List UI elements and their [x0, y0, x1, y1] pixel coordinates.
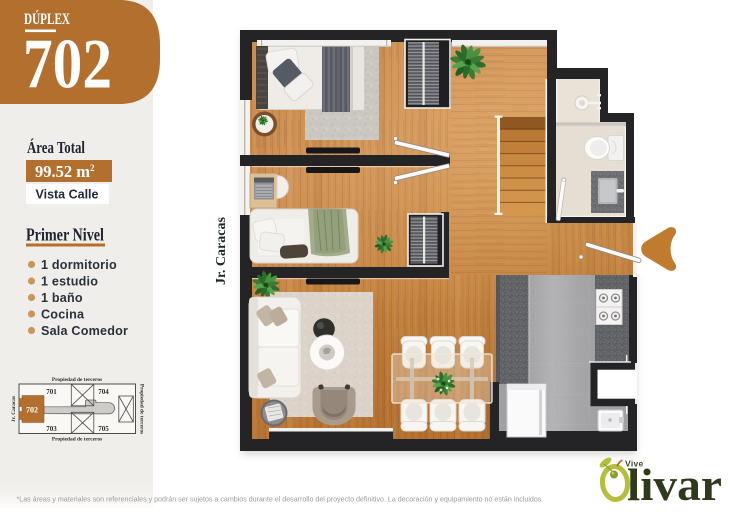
svg-text:Vive: Vive — [625, 459, 644, 469]
svg-text:703: 703 — [46, 425, 57, 433]
svg-text:Propiedad de terceros: Propiedad de terceros — [52, 437, 102, 443]
svg-text:*Las áreas y materiales son re: *Las áreas y materiales son referenciale… — [17, 496, 544, 504]
svg-text:Primer Nivel: Primer Nivel — [26, 225, 104, 245]
svg-text:Área Total: Área Total — [27, 138, 85, 157]
svg-text:1 estudio: 1 estudio — [41, 275, 98, 289]
svg-text:Sala Comedor: Sala Comedor — [41, 324, 128, 338]
svg-text:702: 702 — [26, 406, 38, 415]
svg-text:Propiedad de terceros: Propiedad de terceros — [139, 384, 145, 434]
svg-text:99.52 m2: 99.52 m2 — [35, 162, 95, 181]
svg-text:704: 704 — [98, 388, 109, 396]
svg-text:705: 705 — [98, 425, 109, 433]
svg-text:1 dormitorio: 1 dormitorio — [41, 258, 117, 272]
svg-text:Jr. Caracas: Jr. Caracas — [11, 396, 17, 422]
svg-text:1 baño: 1 baño — [41, 291, 83, 305]
svg-text:Cocina: Cocina — [41, 308, 85, 322]
svg-text:Propiedad de terceros: Propiedad de terceros — [52, 377, 102, 383]
svg-text:Vista Calle: Vista Calle — [35, 188, 98, 202]
svg-text:702: 702 — [23, 26, 112, 104]
svg-text:701: 701 — [46, 388, 57, 396]
svg-text:Jr. Caracas: Jr. Caracas — [214, 217, 229, 285]
